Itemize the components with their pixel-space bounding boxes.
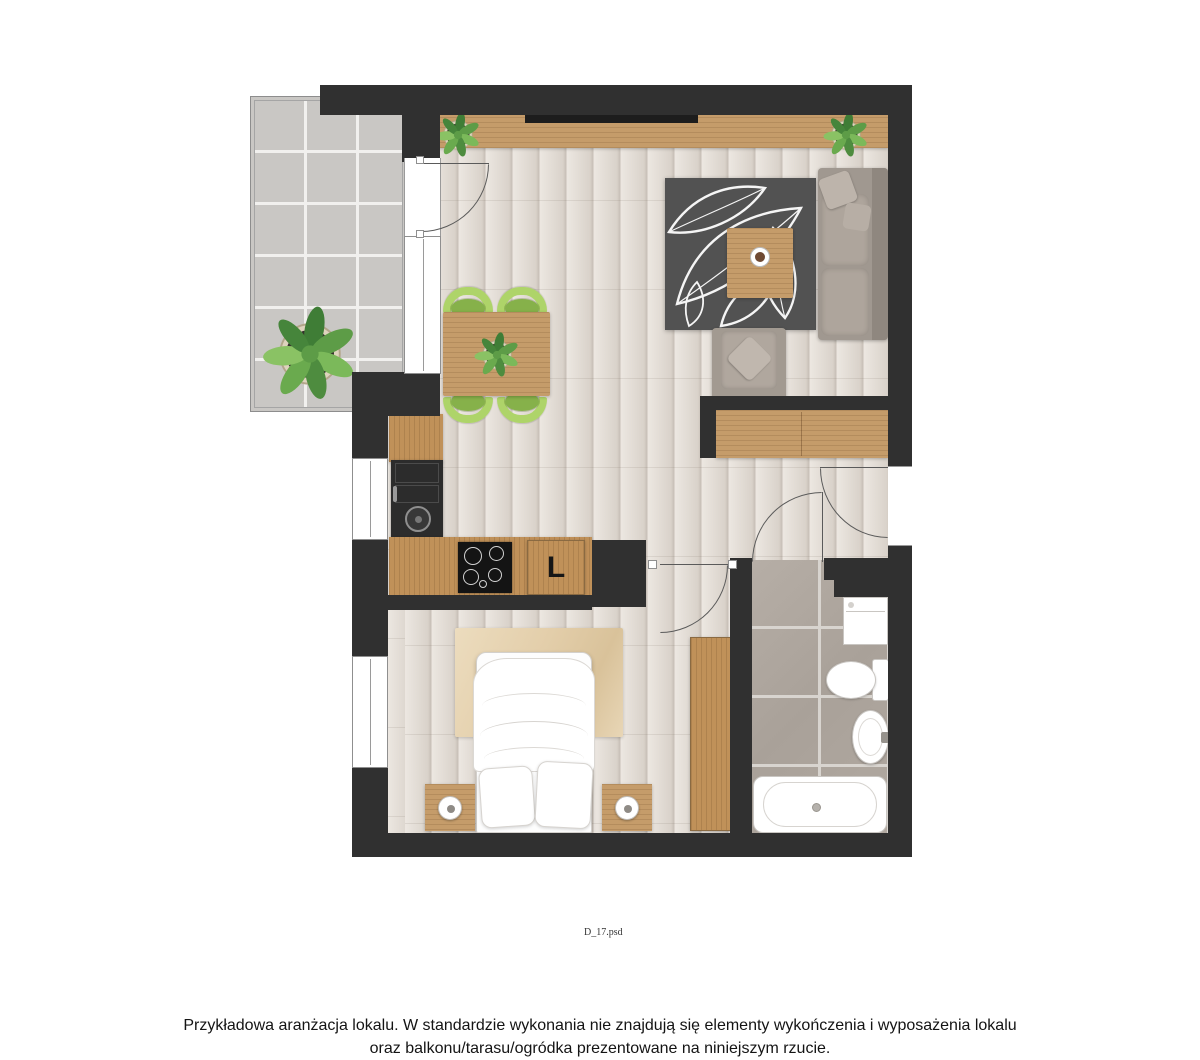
caption-line-2: oraz balkonu/tarasu/ogródka prezentowane… <box>0 1037 1200 1060</box>
dining-table-plant-icon <box>474 332 520 378</box>
washing-machine-lid-line <box>846 611 885 612</box>
sink-bowl <box>405 506 431 532</box>
bed-pillow <box>534 761 593 830</box>
wall-kitchen-bottom <box>388 595 592 610</box>
window-glazing-line <box>423 239 424 371</box>
dining-chair <box>497 394 547 424</box>
wall-right-lower <box>888 546 912 857</box>
caption-line-1: Przykładowa aranżacja lokalu. W standard… <box>0 1014 1200 1037</box>
coffee-cup-contents <box>755 252 765 262</box>
window-glazing-line <box>370 659 371 765</box>
wall-bottom <box>352 833 912 857</box>
lamp-center <box>624 805 632 813</box>
wall-left-upper-block2 <box>352 416 388 460</box>
lamp-center <box>447 805 455 813</box>
wall-kitchen-block <box>592 540 646 607</box>
duvet-fold <box>482 693 586 719</box>
wall-top-left-step <box>402 112 440 162</box>
sofa <box>818 168 888 340</box>
sideboard-plant-right-icon <box>823 112 869 158</box>
wall-hallway-horizontal <box>700 396 888 410</box>
burner <box>463 569 479 585</box>
sofa-cushion <box>821 268 869 336</box>
cooktop <box>458 542 512 593</box>
bathroom-sink-basin <box>858 718 883 756</box>
wall-hallway-vertical <box>700 396 716 458</box>
coffee-cup <box>750 247 770 267</box>
bathtub <box>753 776 887 833</box>
door-jamb-mark <box>728 560 737 569</box>
floor-plan-image: L <box>0 0 1200 1060</box>
sink-cabinet-panel <box>395 485 439 503</box>
watermark-filename: D_17.psd <box>584 927 623 938</box>
door-jamb-mark <box>648 560 657 569</box>
wall-bathroom-top2 <box>834 578 888 597</box>
entrance-opening <box>888 466 912 546</box>
balcony-window <box>404 236 441 374</box>
wardrobe <box>690 637 732 831</box>
toilet <box>826 658 889 702</box>
sideboard-plant-left-icon <box>435 112 481 158</box>
wall-bathroom-divider <box>730 558 752 857</box>
faucet-icon <box>393 486 397 502</box>
door-jamb-mark <box>416 156 424 164</box>
hallway-cabinet <box>716 410 888 458</box>
kitchen-counter-upper <box>389 414 443 462</box>
kitchen-window <box>352 458 388 540</box>
sofa-backrest <box>872 168 888 340</box>
wall-left-upper-block <box>352 372 440 416</box>
burner <box>488 568 502 582</box>
bathroom-door-leaf <box>822 492 823 562</box>
burner <box>479 580 487 588</box>
window-glazing-line <box>370 461 371 537</box>
bedroom-window <box>352 656 388 768</box>
washing-machine <box>843 597 888 645</box>
nightstand-lamp <box>438 796 462 820</box>
fridge-letter: L <box>547 551 565 585</box>
washing-machine-knob <box>848 602 854 608</box>
bathtub-drain <box>812 803 821 812</box>
wall-bathroom-top <box>824 558 888 580</box>
toilet-bowl <box>826 661 876 699</box>
sofa-pillow <box>842 202 872 232</box>
kitchen-sink-unit <box>391 460 443 537</box>
bed-duvet <box>473 658 595 772</box>
sink-cabinet-panel <box>395 463 439 483</box>
bathroom-sink <box>852 710 889 764</box>
dining-chair <box>443 394 493 424</box>
nightstand-lamp <box>615 796 639 820</box>
wall-left-mid <box>352 538 388 658</box>
bed-pillow <box>478 765 536 829</box>
balcony-plant-icon <box>262 306 358 402</box>
hallway-cabinet-divider <box>801 412 802 456</box>
door-jamb-mark <box>416 230 424 238</box>
wall-right-upper <box>888 85 912 466</box>
caption: Przykładowa aranżacja lokalu. W standard… <box>0 1014 1200 1060</box>
wall-top <box>320 85 912 115</box>
burner <box>464 547 482 565</box>
burner <box>489 546 504 561</box>
armchair <box>712 328 786 400</box>
fridge-cabinet: L <box>527 540 585 595</box>
sink-drain <box>415 516 422 523</box>
